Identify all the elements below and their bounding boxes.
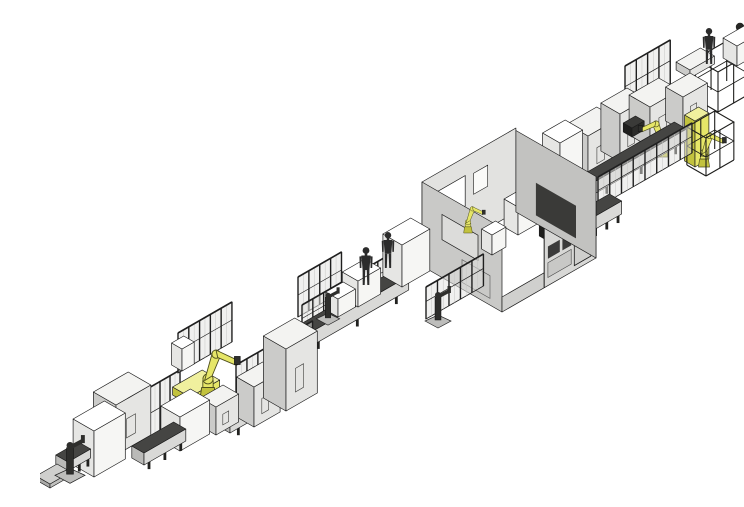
assembly-line-illustration bbox=[40, 16, 744, 491]
white-enclosure-box bbox=[723, 26, 744, 66]
operator-platform bbox=[676, 48, 714, 78]
white-enclosure-box bbox=[172, 336, 195, 371]
assembly-line-canvas bbox=[40, 16, 744, 491]
machine-cabinet bbox=[263, 318, 317, 411]
